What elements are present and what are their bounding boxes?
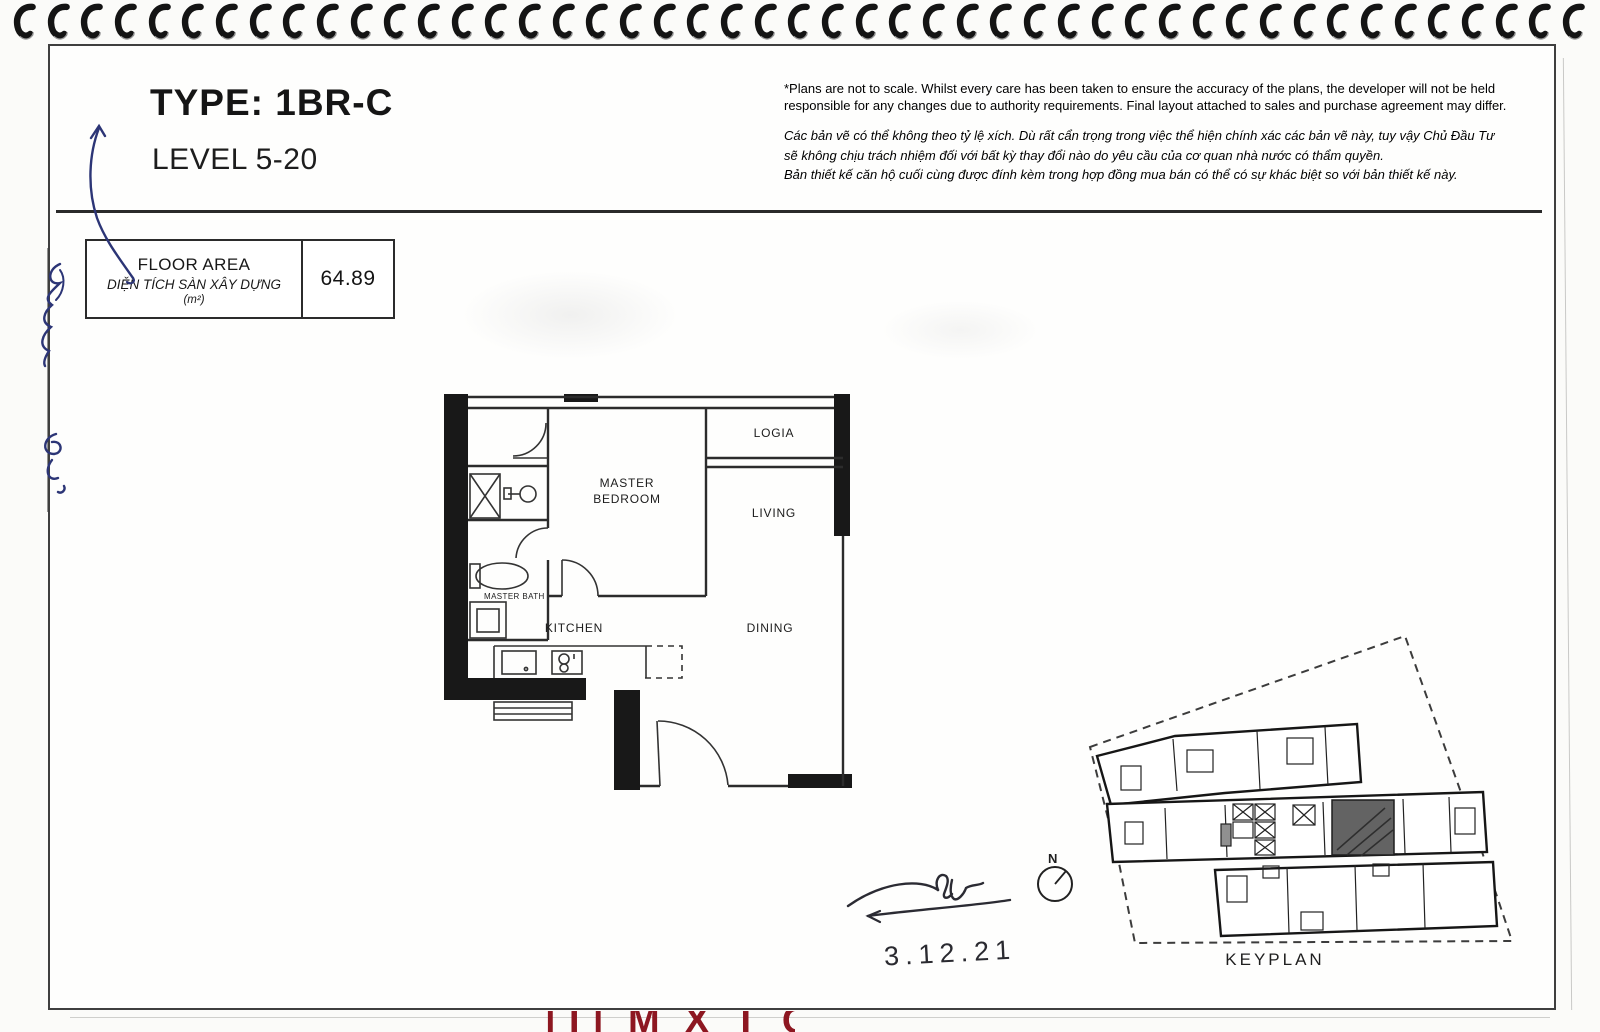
header-divider <box>56 210 1542 213</box>
spiral-coil-icon <box>1258 0 1285 46</box>
spiral-coil-icon <box>1191 0 1218 46</box>
paper-edge-right <box>1563 58 1572 1010</box>
spiral-coil-icon <box>1426 0 1453 46</box>
highlighted-unit <box>1332 800 1394 856</box>
spiral-coil-icon <box>988 0 1015 46</box>
disclaimer-vi-line2: sẽ không chịu trách nhiệm đối với bất kỳ… <box>784 146 1532 166</box>
developer-logo-text: |T| M X T O |T| <box>545 1011 795 1032</box>
disclaimer-vietnamese: Các bản vẽ có thể không theo tỷ lệ xích.… <box>784 126 1532 185</box>
spiral-coil-icon <box>1460 0 1487 46</box>
handwritten-signature <box>842 866 1042 944</box>
spiral-coil-icon <box>685 0 712 46</box>
spiral-coil-icon <box>551 0 578 46</box>
spiral-binding <box>0 0 1600 46</box>
spiral-coil-icon <box>1123 0 1150 46</box>
spiral-coil-icon <box>584 0 611 46</box>
spiral-coil-icon <box>1056 0 1083 46</box>
spiral-coil-icon <box>315 0 342 46</box>
spiral-coil-icon <box>753 0 780 46</box>
spiral-coil-icon <box>820 0 847 46</box>
unit-floor-plan: MASTER BEDROOM LOGIA LIVING KITCHEN DINI… <box>436 388 856 812</box>
spiral-coil-icon <box>46 0 73 46</box>
room-label-logia: LOGIA <box>754 426 795 440</box>
spiral-coil-icon <box>719 0 746 46</box>
floor-area-unit: (m²) <box>183 294 204 306</box>
spiral-coil-icon <box>450 0 477 46</box>
spiral-coil-icon <box>1157 0 1184 46</box>
scan-noise <box>460 270 680 360</box>
north-arrow: N <box>1038 851 1072 901</box>
spiral-coil-icon <box>652 0 679 46</box>
disclaimer-english: *Plans are not to scale. Whilst every ca… <box>784 80 1526 114</box>
spiral-coil-icon <box>416 0 443 46</box>
spiral-coil-icon <box>483 0 510 46</box>
spiral-coil-icon <box>1022 0 1049 46</box>
room-label-master-bedroom2: BEDROOM <box>593 492 661 506</box>
page-title: TYPE: 1BR-C <box>150 82 393 124</box>
spiral-coil-icon <box>854 0 881 46</box>
spiral-coil-icon <box>12 0 39 46</box>
spiral-coil-icon <box>955 0 982 46</box>
spiral-coil-icon <box>1292 0 1319 46</box>
spiral-coil-icon <box>1393 0 1420 46</box>
spiral-coil-icon <box>517 0 544 46</box>
spiral-coil-icon <box>1359 0 1386 46</box>
spiral-coil-icon <box>1224 0 1251 46</box>
scan-noise <box>880 300 1040 360</box>
handwritten-margin-note <box>14 248 90 514</box>
room-label-living: LIVING <box>752 506 796 520</box>
spiral-coil-icon <box>786 0 813 46</box>
spiral-coil-icon <box>1090 0 1117 46</box>
spiral-coil-icon <box>180 0 207 46</box>
spiral-coil-icon <box>214 0 241 46</box>
scanned-floorplan-page: TYPE: 1BR-C LEVEL 5-20 *Plans are not to… <box>0 0 1600 1032</box>
room-label-kitchen: KITCHEN <box>545 621 603 635</box>
room-label-dining: DINING <box>747 621 794 635</box>
spiral-coil-icon <box>147 0 174 46</box>
spiral-coil-icon <box>281 0 308 46</box>
spiral-coil-icon <box>887 0 914 46</box>
paper-edge-bottom <box>70 1017 1550 1018</box>
developer-logo-clipped: |T| M X T O |T| <box>545 1011 795 1032</box>
disclaimer-vi-line3: Bản thiết kế căn hộ cuối cùng được đính … <box>784 165 1532 185</box>
spiral-coil-icon <box>1325 0 1352 46</box>
floor-area-value: 64.89 <box>303 241 393 317</box>
page-subtitle: LEVEL 5-20 <box>152 143 318 177</box>
keyplan-drawing: N KEYPLAN <box>1025 612 1520 977</box>
room-label-master-bath: MASTER BATH <box>484 592 545 601</box>
spiral-coil-icon <box>1561 0 1588 46</box>
disclaimer-vi-line1: Các bản vẽ có thể không theo tỷ lệ xích.… <box>784 126 1532 146</box>
spiral-coil-icon <box>921 0 948 46</box>
spiral-coil-icon <box>618 0 645 46</box>
spiral-coil-icon <box>1494 0 1521 46</box>
room-label-master-bedroom: MASTER <box>600 476 655 490</box>
keyplan-label: KEYPLAN <box>1225 950 1324 969</box>
spiral-coil-icon <box>1527 0 1554 46</box>
spiral-coil-icon <box>79 0 106 46</box>
spiral-coil-icon <box>248 0 275 46</box>
spiral-coil-icon <box>382 0 409 46</box>
north-label: N <box>1048 851 1057 866</box>
building-outline <box>1097 724 1497 936</box>
spiral-coil-icon <box>349 0 376 46</box>
spiral-coil-icon <box>113 0 140 46</box>
